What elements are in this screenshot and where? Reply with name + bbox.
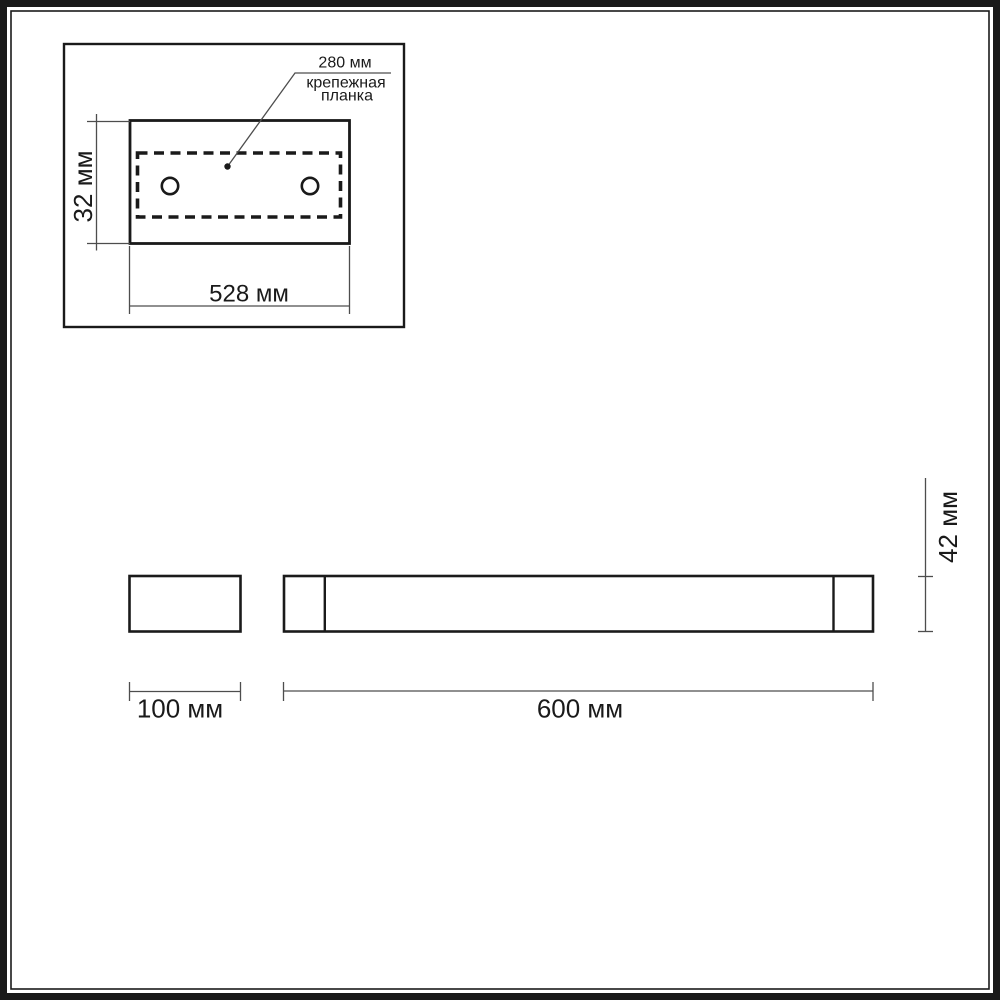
hole-span-label: 280 мм: [318, 55, 371, 72]
side-view: 100 мм: [130, 576, 241, 724]
depth-dimension: 100 мм: [130, 682, 241, 724]
plate-width-label: 528 мм: [209, 281, 289, 308]
plate-height-dimension: 32 мм: [68, 114, 130, 251]
diagram-canvas: 280 мм крепежная планка 32 мм 528 мм: [0, 0, 1000, 1000]
plate-width-dimension: 528 мм: [130, 246, 350, 314]
front-view-outline: [284, 576, 873, 632]
height-dimension: 42 мм: [918, 478, 963, 632]
length-label: 600 мм: [537, 694, 623, 724]
height-label: 42 мм: [933, 491, 963, 563]
front-view: 600 мм 42 мм: [284, 478, 964, 724]
leader-dot: [224, 163, 230, 169]
length-dimension: 600 мм: [284, 682, 874, 724]
mounting-plate-label-line2: планка: [321, 88, 373, 105]
side-view-outline: [130, 576, 241, 632]
mounting-plate-detail-panel: 280 мм крепежная планка 32 мм 528 мм: [64, 44, 404, 327]
depth-label: 100 мм: [137, 694, 223, 724]
dimension-diagram: 280 мм крепежная планка 32 мм 528 мм: [0, 0, 1000, 1000]
plate-height-label: 32 мм: [68, 151, 98, 223]
